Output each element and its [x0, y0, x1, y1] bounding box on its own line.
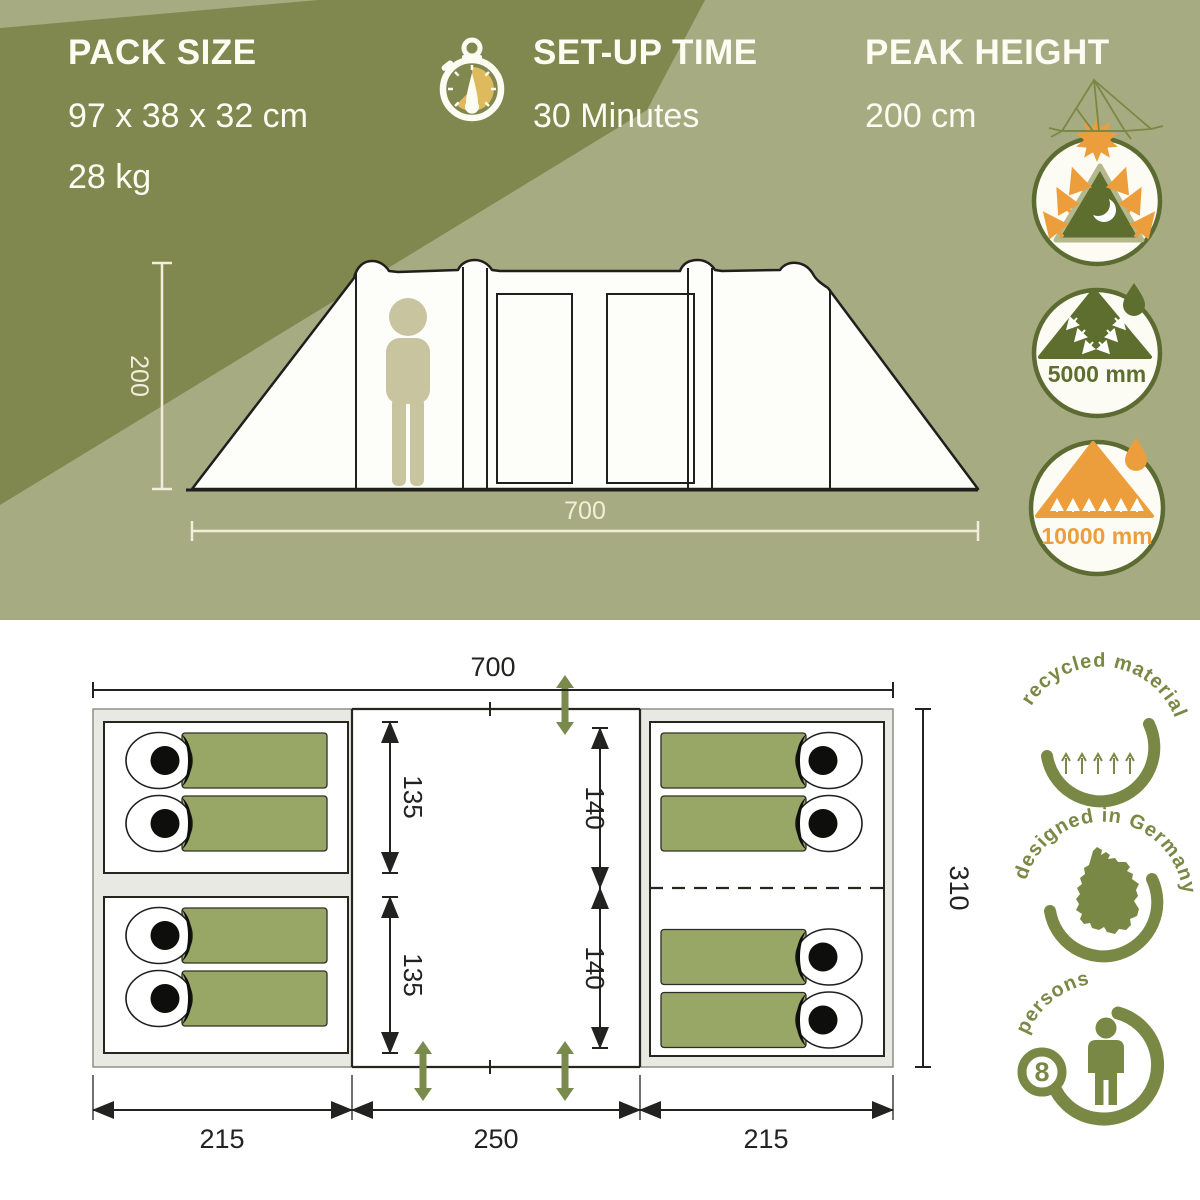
recycled-material-label: recycled material — [1017, 650, 1191, 721]
left-cabin-width-label: 215 — [199, 1124, 244, 1154]
peak-height-title: PEAK HEIGHT — [865, 33, 1110, 72]
pack-size-weight: 28 kg — [68, 158, 151, 196]
germany-map-icon — [1076, 847, 1139, 934]
svg-text:persons: persons — [1012, 967, 1092, 1037]
plan-depth-label: 310 — [944, 865, 974, 910]
bottom-extension-lines — [93, 1075, 893, 1120]
groundsheet-water-column-badge: 10000 mm — [1031, 438, 1163, 574]
height-dimension-label: 200 — [125, 355, 153, 397]
plan-depth-dimension — [915, 709, 931, 1067]
persons-count-label: 8 — [1034, 1057, 1049, 1087]
setup-time-value: 30 Minutes — [533, 97, 699, 135]
designed-in-germany-badge: designed in Germany — [1010, 805, 1200, 957]
floor-plan: 700 310 135 135 140 1 — [93, 652, 974, 1154]
flysheet-water-column-label: 5000 mm — [1048, 361, 1146, 387]
persons-label: persons — [1012, 967, 1092, 1037]
tent-infographic: PACK SIZE 97 x 38 x 32 cm 28 kg SET-UP T… — [0, 0, 1200, 1200]
pack-size-dimensions: 97 x 38 x 32 cm — [68, 97, 308, 135]
right-cabin-width-label: 215 — [743, 1124, 788, 1154]
person-pictogram-icon — [1088, 1018, 1124, 1106]
recycled-up-arrows — [1062, 754, 1134, 774]
groundsheet-water-column-label: 10000 mm — [1041, 523, 1152, 549]
width-dimension-label: 700 — [564, 497, 606, 525]
plan-width-label: 700 — [470, 652, 515, 682]
door-arrows — [414, 675, 574, 1101]
left-upper-depth-label: 135 — [398, 775, 428, 818]
right-lower-depth-label: 140 — [580, 946, 610, 989]
left-upper-depth-dimension — [382, 722, 398, 873]
left-lower-depth-dimension — [382, 897, 398, 1053]
setup-time-title: SET-UP TIME — [533, 33, 758, 72]
peak-height-value: 200 cm — [865, 97, 977, 135]
vestibule-outline — [352, 709, 640, 1067]
right-upper-depth-label: 140 — [580, 786, 610, 829]
infographic-canvas: PACK SIZE 97 x 38 x 32 cm 28 kg SET-UP T… — [0, 0, 1200, 1200]
left-lower-depth-label: 135 — [398, 953, 428, 996]
persons-badge: 8 persons — [1012, 967, 1158, 1119]
pack-size-title: PACK SIZE — [68, 33, 257, 72]
plan-width-dimension — [93, 682, 893, 698]
svg-text:recycled material: recycled material — [1017, 650, 1191, 721]
vestibule-width-label: 250 — [473, 1124, 518, 1154]
